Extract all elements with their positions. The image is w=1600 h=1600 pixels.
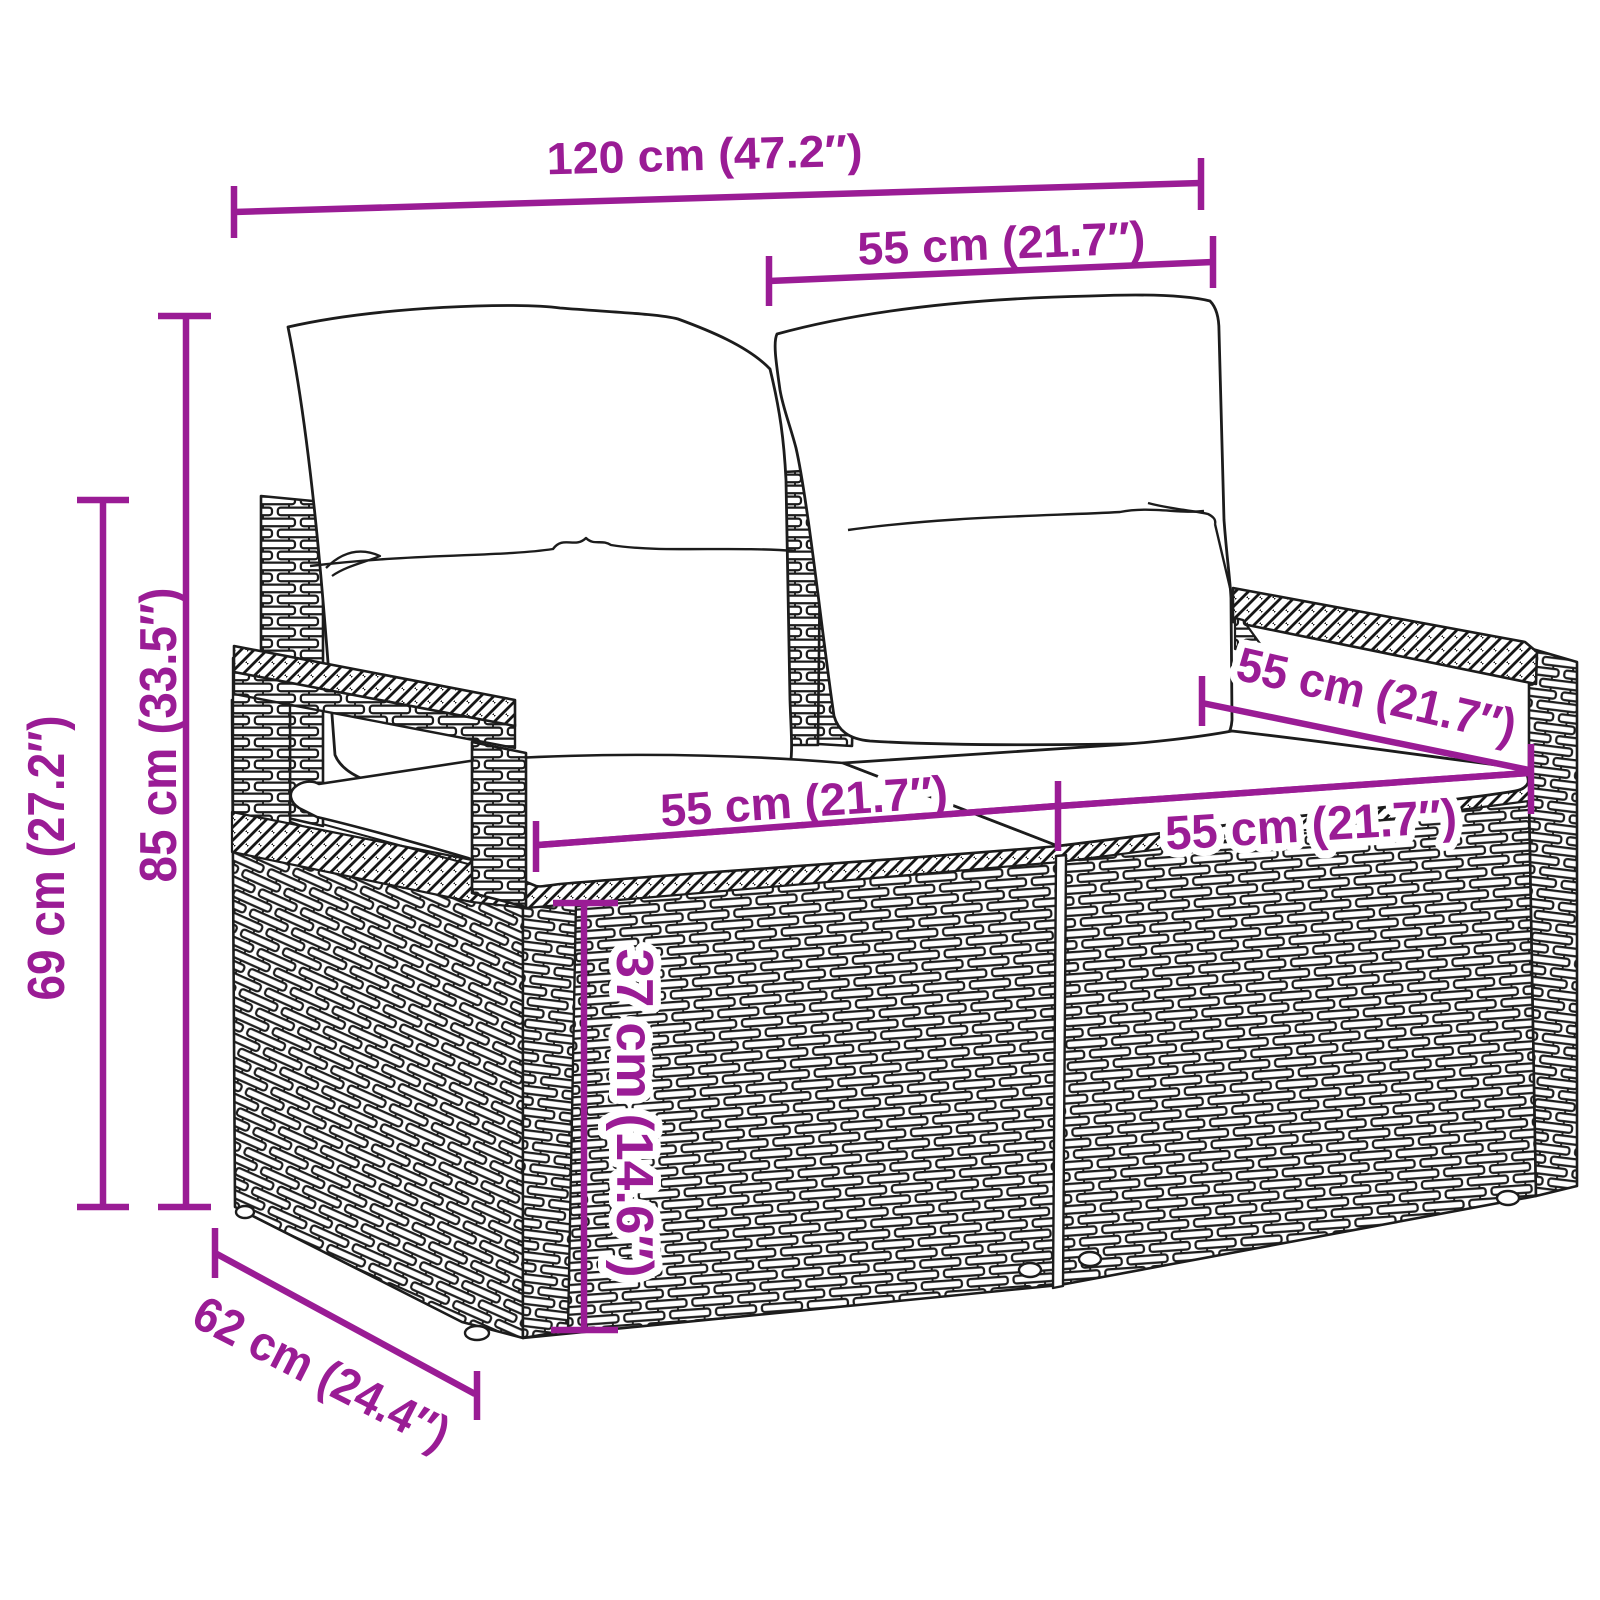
svg-text:37 cm (14.6″): 37 cm (14.6″) (605, 949, 663, 1278)
svg-text:120 cm (47.2″): 120 cm (47.2″) (546, 125, 863, 185)
svg-text:85 cm (33.5″): 85 cm (33.5″) (130, 588, 188, 883)
svg-text:69 cm (27.2″): 69 cm (27.2″) (18, 716, 76, 1001)
